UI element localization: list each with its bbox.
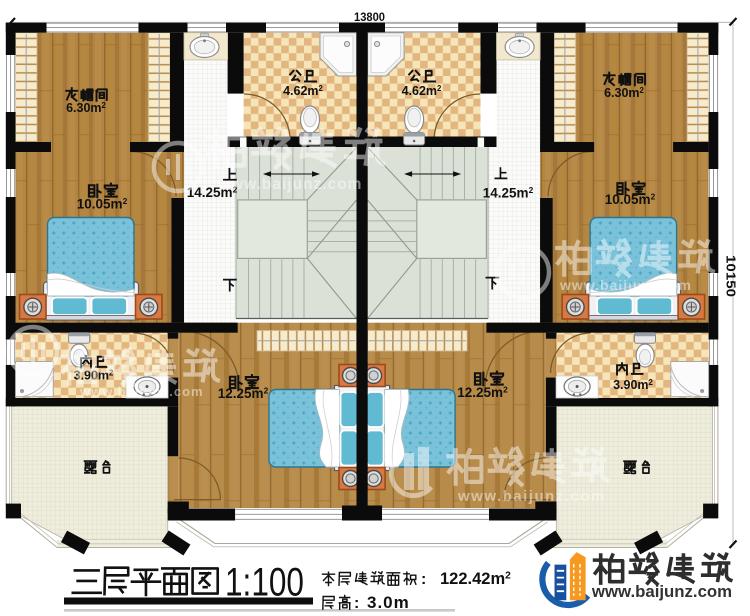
svg-text:12.25m2: 12.25m2 xyxy=(218,386,269,401)
svg-text:www.baijunz.com: www.baijunz.com xyxy=(591,582,732,601)
svg-text:www.baijunz.com: www.baijunz.com xyxy=(79,384,204,399)
svg-text:6.30m2: 6.30m2 xyxy=(604,86,644,100)
svg-text:6.30m2: 6.30m2 xyxy=(66,101,106,115)
svg-text::: : xyxy=(421,571,426,588)
svg-text:10.05m2: 10.05m2 xyxy=(77,196,128,211)
svg-text:10.05m2: 10.05m2 xyxy=(605,192,656,207)
svg-text::: : xyxy=(354,595,359,612)
svg-text:4.62m2: 4.62m2 xyxy=(283,84,323,98)
svg-text:13800: 13800 xyxy=(354,12,385,24)
svg-text:14.25m2: 14.25m2 xyxy=(483,185,534,200)
svg-text:10150: 10150 xyxy=(724,255,738,297)
svg-text:4.62m2: 4.62m2 xyxy=(402,84,442,98)
svg-text:3.90m2: 3.90m2 xyxy=(613,378,653,392)
svg-text:12.25m2: 12.25m2 xyxy=(457,385,508,400)
svg-text:www.baijunz.com: www.baijunz.com xyxy=(559,277,692,293)
svg-text:www.baijunz.com: www.baijunz.com xyxy=(217,176,362,193)
svg-text:www.baijunz.com: www.baijunz.com xyxy=(457,488,606,505)
svg-text:122.42m2: 122.42m2 xyxy=(440,570,511,588)
svg-text:3.0m: 3.0m xyxy=(367,593,410,612)
